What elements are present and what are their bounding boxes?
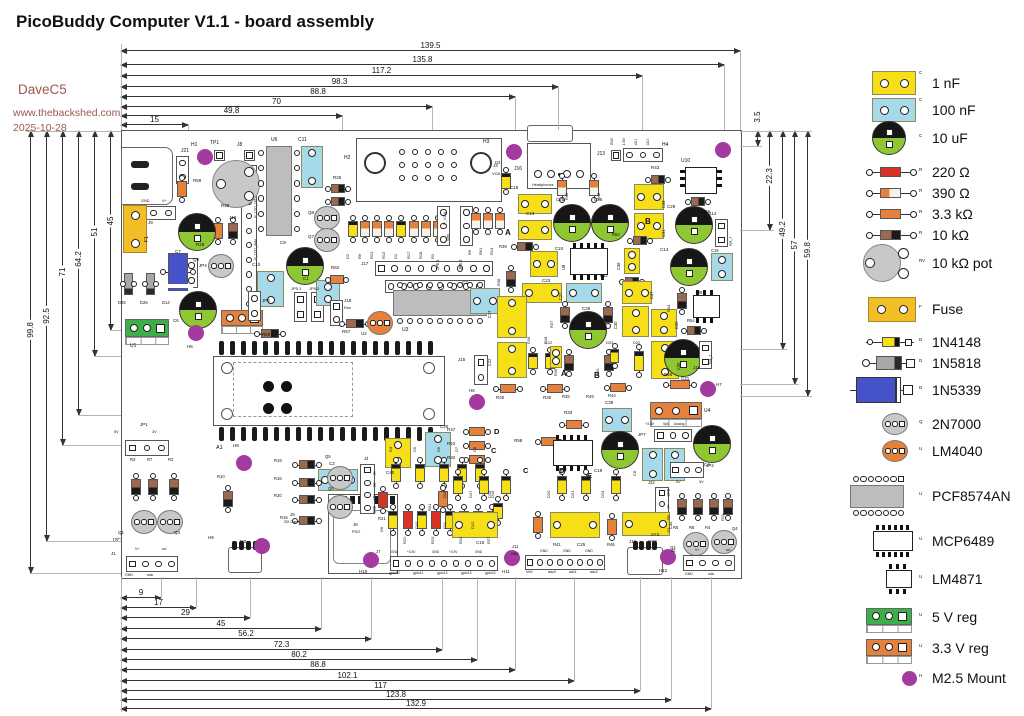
component-soic-ic xyxy=(685,167,717,194)
line xyxy=(62,445,121,446)
pad xyxy=(672,467,678,473)
pad xyxy=(316,462,322,468)
ref-label-r26: R26 xyxy=(333,176,341,181)
pad xyxy=(521,226,529,234)
ref-label-r11: R11 xyxy=(721,514,725,521)
pad xyxy=(324,283,332,291)
pad xyxy=(877,305,886,314)
ref-label-h8: H8 xyxy=(233,444,239,449)
pad xyxy=(641,289,649,297)
pad xyxy=(527,559,533,565)
ref-label-d19: D19 xyxy=(491,491,495,498)
usb-slot xyxy=(131,161,149,168)
pad xyxy=(569,214,576,221)
pad xyxy=(478,359,484,365)
ref-label-d9: D9 xyxy=(380,527,384,532)
regulator-tabs xyxy=(866,625,912,633)
ref-label-r29: R29 xyxy=(221,204,229,209)
pad xyxy=(583,422,589,428)
pad xyxy=(165,210,171,216)
ref-label-3v: 3V xyxy=(699,481,704,485)
pad xyxy=(399,162,405,168)
component-electrolytic-cap xyxy=(601,431,639,469)
pad xyxy=(120,281,126,287)
component-diode xyxy=(348,221,358,237)
pad xyxy=(718,237,724,243)
ref-label-q7: Q7 xyxy=(308,235,314,240)
ref-label-c27: C27 xyxy=(559,293,563,301)
pad xyxy=(473,297,481,305)
pad xyxy=(711,493,717,499)
legend-swatch-resistor xyxy=(880,209,901,219)
dimension-value: 15 xyxy=(148,116,161,124)
dimension-57: 57 xyxy=(794,131,795,384)
line xyxy=(30,573,121,574)
pad xyxy=(423,237,429,243)
ref-label-h12: H12 xyxy=(659,569,667,574)
pad xyxy=(534,170,542,178)
pad xyxy=(701,328,707,334)
ref-label-gnd: GND xyxy=(125,574,133,578)
legend-swatch-resistor xyxy=(880,230,901,240)
ref-label-d20: D20 xyxy=(547,491,551,498)
ref-label-d6: D6 xyxy=(437,447,441,452)
author-credit: DaveC5 xyxy=(18,82,67,97)
ref-label-j1: J1 xyxy=(111,552,116,557)
smt-pad xyxy=(639,541,644,550)
ref-label-gpio12: gpio12 xyxy=(437,572,448,576)
ref-label-j19: J19 xyxy=(629,540,636,545)
vga-screw-hole xyxy=(364,152,386,174)
component-resistor xyxy=(299,516,316,525)
pad xyxy=(653,193,661,201)
ref-label-c1: C1 xyxy=(303,277,309,282)
ref-label-win: Win xyxy=(446,234,450,241)
smt-pad xyxy=(428,341,433,355)
pad xyxy=(552,349,560,357)
dimension-117: 117 xyxy=(121,690,640,691)
soic-pins xyxy=(696,318,717,323)
component-diode xyxy=(634,351,644,370)
pad xyxy=(364,480,370,486)
ref-label-r35: R35 xyxy=(562,395,570,399)
ref-label-c9: C9 xyxy=(280,241,286,246)
dimension-value: 29 xyxy=(179,609,192,617)
pad xyxy=(451,175,457,181)
pad xyxy=(537,559,543,565)
pad xyxy=(899,305,908,314)
pad xyxy=(380,486,386,492)
smt-pad xyxy=(296,341,301,355)
dimension-value: 132.9 xyxy=(404,700,428,708)
pad xyxy=(606,371,612,377)
ref-label-d2: D2 xyxy=(346,254,350,259)
pad xyxy=(455,495,461,501)
legend-label-19: M2.5 Mount xyxy=(932,670,1006,686)
pad xyxy=(441,560,447,566)
mount-hole-m2.5 xyxy=(506,144,522,160)
pad xyxy=(632,326,640,334)
dimension-15: 15 xyxy=(121,124,188,125)
pad xyxy=(559,495,565,501)
dimension-45: 45 xyxy=(110,131,111,330)
pad xyxy=(451,162,457,168)
pad xyxy=(875,476,881,482)
pad xyxy=(645,177,651,183)
pad xyxy=(886,129,893,136)
legend-label-13: LM4040 xyxy=(932,443,983,459)
legend-tag: U xyxy=(919,612,922,617)
line xyxy=(121,577,122,712)
ref-label-c: C xyxy=(491,447,496,455)
component-resistor xyxy=(607,519,617,535)
pad xyxy=(657,432,663,438)
component-resistor xyxy=(566,420,583,429)
pad xyxy=(215,217,221,223)
ref-label-a: A xyxy=(505,229,511,237)
ref-label-c18: C18 xyxy=(510,186,518,191)
ref-label-q8: Q8 xyxy=(308,211,314,216)
pad xyxy=(131,239,140,248)
ref-label-h5: H5 xyxy=(187,345,193,350)
legend-label-11: 1N5339 xyxy=(932,382,981,398)
ref-label-h3: H3 xyxy=(483,140,489,145)
ref-label-j5: J5 xyxy=(290,513,295,518)
legend-swatch-diode xyxy=(856,377,896,403)
pad xyxy=(521,200,529,208)
pad xyxy=(179,175,185,181)
ref-label-r41: R41 xyxy=(553,543,561,547)
ref-label-analog: Analog xyxy=(674,423,685,426)
ref-label-u1: U1 xyxy=(130,344,136,349)
pad xyxy=(179,160,185,166)
pad xyxy=(868,476,874,482)
ref-label-b: B xyxy=(645,218,651,226)
pad xyxy=(399,175,405,181)
pad xyxy=(195,301,202,308)
ref-label-r27: R27 xyxy=(487,537,491,544)
legend-swatch-diode xyxy=(876,356,902,370)
ref-label-d12: D12 xyxy=(471,522,475,529)
pad xyxy=(886,141,893,148)
ref-label-d7: D7 xyxy=(455,447,459,452)
connector xyxy=(527,125,573,142)
pad xyxy=(155,561,161,567)
dimension-98.3: 98.3 xyxy=(121,86,558,87)
ref-label-+3.3v: +3.3V xyxy=(645,423,654,426)
pad xyxy=(337,504,342,509)
ref-label-gpio11: gpio11 xyxy=(413,572,423,576)
ref-label-r32: R32 xyxy=(447,456,455,461)
pad xyxy=(866,169,873,176)
pad xyxy=(718,223,724,229)
ref-label-f1: F1 xyxy=(145,236,150,242)
pad xyxy=(324,215,329,220)
ref-label-+3.3v: +3.3V xyxy=(449,551,457,554)
pad xyxy=(434,435,442,443)
pad xyxy=(679,309,685,315)
ref-label-d16: D16 xyxy=(527,337,531,344)
pad xyxy=(890,476,896,482)
pad xyxy=(156,324,165,333)
pad xyxy=(860,476,866,482)
ref-label-r52: R52 xyxy=(600,274,608,278)
ref-label-d15: D15 xyxy=(443,491,447,498)
pad xyxy=(880,79,889,88)
legend-label-2: 10 uF xyxy=(932,130,968,146)
ref-label-3v: 3V xyxy=(152,431,157,435)
pad xyxy=(679,515,685,521)
band xyxy=(896,377,901,403)
pad xyxy=(663,382,669,388)
pad xyxy=(725,560,731,566)
ref-label-r22: R22 xyxy=(403,537,407,544)
component-diode xyxy=(388,511,398,529)
pad xyxy=(171,473,177,479)
component-diode xyxy=(557,476,567,494)
legend-tag: R xyxy=(919,230,922,235)
dimension-92.5: 92.5 xyxy=(46,131,47,541)
pad xyxy=(429,560,435,566)
legend-tag: C xyxy=(919,97,922,102)
legend-label-8: Fuse xyxy=(932,301,963,317)
ref-label-plcddata: P_LCD_data xyxy=(254,239,258,260)
pad xyxy=(194,235,201,242)
pad xyxy=(370,320,375,325)
pad xyxy=(412,175,418,181)
pad xyxy=(216,152,222,158)
pad xyxy=(339,321,345,327)
pico-hole xyxy=(221,408,233,420)
pad xyxy=(626,385,632,391)
dimension-29: 29 xyxy=(121,617,250,618)
ref-label-r28: R28 xyxy=(196,243,204,248)
pad xyxy=(316,497,322,503)
smt-pad xyxy=(362,427,367,441)
line xyxy=(342,115,343,130)
line xyxy=(250,577,251,617)
pad xyxy=(292,480,298,486)
pad xyxy=(344,504,349,509)
pad xyxy=(131,281,137,287)
pad xyxy=(712,560,718,566)
pad xyxy=(718,256,726,264)
legend-swatch-resistor xyxy=(880,167,901,177)
pad xyxy=(343,277,349,283)
ref-label-d4: D4 xyxy=(389,447,393,452)
legend-tag: RV xyxy=(919,258,925,263)
pad xyxy=(333,303,339,309)
dimension-22.3: 22.3 xyxy=(769,131,770,230)
smt-pad xyxy=(373,427,378,441)
ref-label-c37: C37 xyxy=(650,292,654,300)
component-diode xyxy=(610,349,619,363)
dimension-value: 88.8 xyxy=(308,661,328,669)
pad xyxy=(465,560,471,566)
ref-label-q6: Q6 xyxy=(328,487,334,491)
pad xyxy=(900,79,909,88)
pad xyxy=(699,560,705,566)
smt-pad xyxy=(263,427,268,441)
pad xyxy=(867,339,873,345)
ref-label-adj: ADJ xyxy=(635,139,638,145)
legend-swatch-capacitor xyxy=(872,71,916,95)
line xyxy=(740,146,762,147)
pad xyxy=(709,435,716,442)
legend-label-6: 10 kΩ xyxy=(932,227,969,243)
legend-tag: U xyxy=(919,491,922,496)
ref-label-h11: H11 xyxy=(502,570,510,575)
pad xyxy=(541,200,549,208)
ref-label-gnd: GND xyxy=(432,551,439,554)
pad xyxy=(508,287,514,293)
pad xyxy=(330,504,335,509)
pad xyxy=(280,331,286,337)
pad xyxy=(493,386,499,392)
ref-label-a: A xyxy=(561,370,567,378)
ref-label-r19: R19 xyxy=(274,459,282,463)
pad xyxy=(225,485,231,491)
ref-label-j6: J6 xyxy=(353,523,358,528)
line xyxy=(740,384,799,385)
pad xyxy=(910,190,917,197)
pad xyxy=(569,289,577,297)
pad xyxy=(625,520,633,528)
line xyxy=(121,44,122,130)
line xyxy=(671,577,672,699)
ref-label-u6: U6 xyxy=(271,138,277,143)
pad xyxy=(700,541,705,546)
pad xyxy=(649,451,657,459)
pad xyxy=(411,215,417,221)
ref-label-c24: C24 xyxy=(555,247,563,252)
ref-label-j15: J15 xyxy=(458,358,465,363)
legend-label-15: MCP6489 xyxy=(932,533,994,549)
pico-pad xyxy=(263,381,274,392)
pad xyxy=(853,476,859,482)
pad xyxy=(689,406,698,415)
pad xyxy=(405,560,411,566)
component-diode xyxy=(396,221,406,237)
pad xyxy=(440,507,446,513)
ref-label-1.5m: 1.5M xyxy=(623,138,626,145)
pad xyxy=(530,369,536,375)
component-resistor xyxy=(409,221,419,237)
component-resistor xyxy=(560,307,570,323)
pad xyxy=(258,195,264,201)
dimension-value: 117.2 xyxy=(370,67,393,75)
pad xyxy=(167,519,172,524)
ref-label-u8: U8 xyxy=(562,265,566,270)
pad xyxy=(485,429,491,435)
smt-pad xyxy=(219,427,224,441)
smt-pad xyxy=(307,341,312,355)
component-diode xyxy=(611,476,621,494)
pad xyxy=(503,469,509,475)
pad xyxy=(394,441,402,449)
ref-label-r45: R45 xyxy=(565,193,569,200)
legend-label-9: 1N4148 xyxy=(932,334,981,350)
ref-label-plcdctrl: P_LCD_ctrl xyxy=(254,199,258,217)
pad xyxy=(665,177,671,183)
pad xyxy=(463,429,469,435)
ref-label-h2: H2 xyxy=(344,156,350,161)
ref-label-j14: J14 xyxy=(709,212,716,217)
line xyxy=(515,96,516,130)
ref-label-sda: sda xyxy=(668,515,672,521)
ref-label-r33: R33 xyxy=(564,411,572,416)
pad xyxy=(188,262,194,268)
ref-label-r39: R39 xyxy=(499,245,507,249)
ref-label-r51: R51 xyxy=(593,321,597,328)
line xyxy=(432,106,433,130)
ref-label-d22: D22 xyxy=(633,341,640,345)
pad xyxy=(251,310,257,316)
pad xyxy=(497,229,503,235)
ref-label-jp3: JP3 xyxy=(262,299,270,304)
ref-label-d21: D21 xyxy=(571,491,575,498)
ref-label-j10: J10 xyxy=(229,216,236,221)
pad xyxy=(438,162,444,168)
dimension-value: 70 xyxy=(270,98,283,106)
legend-label-3: 220 Ω xyxy=(932,164,970,180)
ref-label-r8: R8 xyxy=(689,526,694,530)
component-resistor xyxy=(299,495,316,504)
ref-label-j11: J11 xyxy=(512,545,518,549)
ref-label-adc1: adc1 xyxy=(569,571,577,575)
ref-label-u2: U2 xyxy=(361,332,367,337)
dimension-value: 59.8 xyxy=(804,240,812,260)
pad xyxy=(530,347,536,353)
component-resistor xyxy=(148,479,158,495)
ref-label-jp6.1: JP6.1 xyxy=(436,259,440,270)
ref-label-q1: Q1 xyxy=(118,531,124,536)
pad xyxy=(475,504,481,510)
dimension-value: 56.2 xyxy=(236,630,256,638)
pico-hole xyxy=(221,362,233,374)
pad xyxy=(463,443,469,449)
dimension-132.9: 132.9 xyxy=(121,708,711,709)
component-soic-ic xyxy=(693,295,720,318)
ref-label-r6: R6 xyxy=(358,254,362,259)
ref-label-gnd: GND xyxy=(611,138,614,145)
dimension-value: 71 xyxy=(59,266,67,279)
line xyxy=(740,50,741,130)
component-resistor xyxy=(228,223,238,239)
component-resistor xyxy=(360,221,370,237)
pad xyxy=(900,106,909,115)
pad xyxy=(597,559,603,565)
ref-label-h4: H4 xyxy=(662,143,668,148)
ref-label-c30: C30 xyxy=(614,322,618,330)
pad xyxy=(314,311,320,317)
ref-label-c33: C33 xyxy=(662,201,666,209)
line xyxy=(161,577,162,597)
pad xyxy=(899,421,904,426)
dimension-64.2: 64.2 xyxy=(78,131,79,415)
pad xyxy=(308,177,316,185)
dimension-value: 51 xyxy=(91,226,99,239)
ref-label-i2c2: I2C2 xyxy=(648,540,657,544)
pad xyxy=(632,309,640,317)
legend-tag: U xyxy=(919,446,922,451)
pad xyxy=(508,327,516,335)
dimension-56.2: 56.2 xyxy=(121,638,371,639)
line xyxy=(442,577,443,649)
component-resistor xyxy=(384,221,394,237)
line xyxy=(574,577,575,680)
date-credit: 2025-10-28 xyxy=(13,122,67,134)
